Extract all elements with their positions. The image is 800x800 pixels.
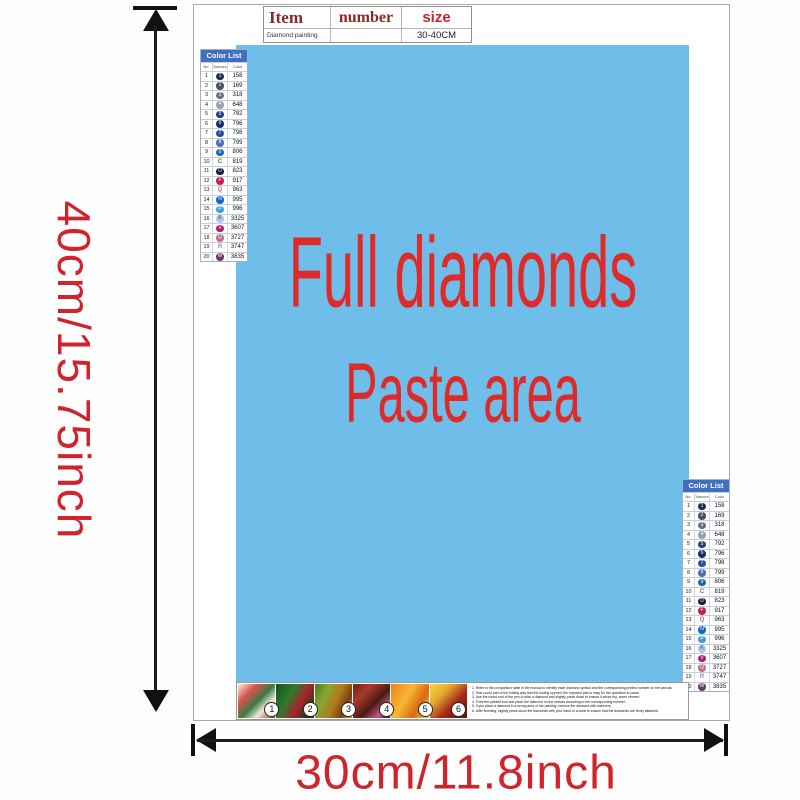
- diamond-swatch-icon: N: [698, 626, 706, 634]
- row-number: 1: [683, 502, 694, 511]
- row-number: 14: [201, 196, 212, 205]
- dmc-color-code: 796: [709, 550, 729, 559]
- diamond-symbol-icon: C: [218, 159, 222, 165]
- dmc-color-code: 3835: [709, 683, 729, 692]
- step-image-1: 1: [238, 684, 275, 718]
- dmc-color-code: 158: [227, 72, 247, 81]
- horizontal-dimension-line: [197, 739, 723, 742]
- row-number: 10: [683, 588, 694, 597]
- dmc-color-code: 648: [227, 101, 247, 110]
- horizontal-dimension-right-cap: [724, 724, 728, 756]
- horizontal-dimension-left-cap: [191, 724, 195, 756]
- width-dimension-label: 30cm/11.8inch: [295, 746, 617, 800]
- color-list-right: Color List No. Diamond Color 11158221693…: [682, 479, 730, 692]
- paste-area: Full diamonds Paste area: [236, 45, 689, 682]
- diamond-swatch-icon: V: [698, 655, 706, 663]
- dmc-color-code: 995: [227, 196, 247, 205]
- row-number: 13: [201, 186, 212, 195]
- color-list-row: 20W3835: [683, 682, 729, 692]
- row-number: 19: [683, 673, 694, 682]
- diamond-swatch-icon: 1: [698, 503, 706, 511]
- item-column-header: Item: [264, 7, 330, 28]
- row-number: 17: [201, 224, 212, 233]
- row-number: 5: [201, 110, 212, 119]
- diamond-swatch-icon: 2: [698, 512, 706, 520]
- step-image-2: 2: [276, 684, 313, 718]
- instruction-strip: 123456 1. Refer to the comparison table …: [236, 682, 689, 720]
- no-column-header: No.: [683, 493, 694, 501]
- color-list-row: 17V3607: [683, 653, 729, 663]
- color-list-row: 11158: [201, 71, 247, 81]
- row-number: 3: [683, 521, 694, 530]
- dmc-color-code: 158: [709, 502, 729, 511]
- step-number-badge: 6: [451, 702, 466, 717]
- dmc-color-code: 648: [709, 531, 729, 540]
- color-list-row: 44648: [683, 530, 729, 540]
- row-number: 7: [683, 559, 694, 568]
- color-list-row: 18Q3727: [201, 233, 247, 243]
- row-number: 8: [201, 139, 212, 148]
- color-list-row: 66796: [683, 549, 729, 559]
- dmc-color-code: 3747: [227, 243, 247, 252]
- row-number: 7: [201, 129, 212, 138]
- row-number: 11: [201, 167, 212, 176]
- diamond-swatch-icon: D: [216, 168, 224, 176]
- dmc-color-code: 963: [227, 186, 247, 195]
- color-list-title: Color List: [201, 50, 247, 62]
- row-number: 2: [683, 512, 694, 521]
- dmc-color-code: 823: [709, 597, 729, 606]
- diamond-swatch-icon: 4: [698, 531, 706, 539]
- diamond-swatch-icon: Q: [216, 234, 224, 242]
- item-size-cell: 30-40CM: [401, 29, 471, 42]
- diamond-swatch-icon: K: [698, 645, 706, 653]
- diamond-swatch-icon: 2: [216, 82, 224, 90]
- dmc-color-code: 3727: [227, 234, 247, 243]
- dmc-color-code: 3727: [709, 664, 729, 673]
- row-number: 16: [683, 645, 694, 654]
- step-thumbnails: 123456: [237, 683, 468, 719]
- diamond-swatch-icon: 6: [216, 120, 224, 128]
- color-list-row: 14N995: [683, 625, 729, 635]
- row-number: 15: [201, 205, 212, 214]
- instruction-line: 1. Refer to the comparison table in the …: [472, 686, 685, 691]
- color-list-row: 77798: [683, 558, 729, 568]
- row-number: 9: [201, 148, 212, 157]
- color-list-row: 33318: [683, 520, 729, 530]
- color-list-row: 16K3325: [683, 644, 729, 654]
- dmc-color-code: 318: [709, 521, 729, 530]
- color-list-row: 22169: [201, 81, 247, 91]
- dmc-color-code: 963: [709, 616, 729, 625]
- color-list-row: 11D823: [683, 596, 729, 606]
- diamond-symbol-icon: C: [700, 589, 704, 595]
- row-number: 18: [201, 234, 212, 243]
- item-name-cell: Diamond painting: [264, 29, 330, 42]
- row-number: 13: [683, 616, 694, 625]
- dmc-color-code: 3835: [227, 253, 247, 262]
- diamond-swatch-icon: 3: [698, 522, 706, 530]
- diamond-swatch-icon: 9: [216, 149, 224, 157]
- row-number: 5: [683, 540, 694, 549]
- diamond-swatch-icon: F: [698, 607, 706, 615]
- dmc-color-code: 917: [227, 177, 247, 186]
- color-list-row: 13Q963: [201, 185, 247, 195]
- color-list-row: 99806: [683, 577, 729, 587]
- dmc-color-code: 799: [709, 569, 729, 578]
- dmc-color-code: 318: [227, 91, 247, 100]
- color-list-row: 22169: [683, 511, 729, 521]
- dmc-color-code: 996: [709, 635, 729, 644]
- dmc-color-code: 3325: [227, 215, 247, 224]
- diamond-swatch-icon: 7: [698, 560, 706, 568]
- row-number: 9: [683, 578, 694, 587]
- color-list-left: Color List No. Diamond Color 11158221693…: [200, 49, 248, 262]
- step-number-badge: 5: [418, 702, 433, 717]
- diamond-swatch-icon: 5: [698, 541, 706, 549]
- diamond-swatch-icon: F: [216, 177, 224, 185]
- row-number: 6: [683, 550, 694, 559]
- color-list-row: 66796: [201, 119, 247, 129]
- row-number: 18: [683, 664, 694, 673]
- step-image-5: 5: [391, 684, 428, 718]
- canvas-poster: Item number size Diamond painting 30-40C…: [193, 4, 730, 721]
- diamond-swatch-icon: K: [216, 215, 224, 223]
- row-number: 4: [683, 531, 694, 540]
- row-number: 3: [201, 91, 212, 100]
- color-list-row: 18Q3727: [683, 663, 729, 673]
- diamond-swatch-icon: P: [698, 636, 706, 644]
- dmc-color-code: 917: [709, 607, 729, 616]
- item-table-header-row: Item number size: [264, 7, 471, 29]
- color-list-column-headers: No. Diamond Color: [201, 62, 247, 71]
- diamond-swatch-icon: 8: [216, 139, 224, 147]
- diamond-swatch-icon: D: [698, 598, 706, 606]
- step-image-6: 6: [430, 684, 467, 718]
- diamond-swatch-icon: 6: [698, 550, 706, 558]
- dmc-color-code: 796: [227, 120, 247, 129]
- color-list-row: 11D823: [201, 166, 247, 176]
- color-list-row: 88799: [683, 568, 729, 578]
- dmc-color-code: 798: [227, 129, 247, 138]
- color-list-row: 19R3747: [683, 672, 729, 682]
- size-column-header: size: [401, 7, 471, 28]
- color-list-row: 12F917: [201, 176, 247, 186]
- diamond-swatch-icon: 1: [216, 73, 224, 81]
- color-list-row: 13Q963: [683, 615, 729, 625]
- color-list-row: 55792: [683, 539, 729, 549]
- instruction-line: 6. After finishing, slightly press down …: [472, 709, 685, 714]
- diamond-symbol-icon: Q: [700, 617, 705, 623]
- arrow-right-icon: [704, 728, 724, 752]
- row-number: 2: [201, 82, 212, 91]
- diamond-swatch-icon: 3: [216, 92, 224, 100]
- diamond-swatch-icon: N: [216, 196, 224, 204]
- dmc-color-code: 3607: [709, 654, 729, 663]
- row-number: 12: [201, 177, 212, 186]
- arrow-down-icon: [143, 690, 169, 712]
- item-number-cell: [330, 29, 401, 42]
- row-number: 11: [683, 597, 694, 606]
- no-column-header: No.: [201, 63, 212, 71]
- number-column-header: number: [330, 7, 401, 28]
- dmc-color-code: 3325: [709, 645, 729, 654]
- dmc-color-code: 823: [227, 167, 247, 176]
- step-number-badge: 2: [303, 702, 318, 717]
- dmc-color-code: 798: [709, 559, 729, 568]
- diamond-symbol-icon: Q: [218, 187, 223, 193]
- diamond-swatch-icon: 4: [216, 101, 224, 109]
- item-table-data-row: Diamond painting 30-40CM: [264, 29, 471, 42]
- color-list-row: 15P996: [201, 204, 247, 214]
- product-infographic: 40cm/15.75inch Item number size Diamond …: [0, 0, 800, 800]
- color-list-row: 20W3835: [201, 252, 247, 262]
- dmc-color-code: 806: [709, 578, 729, 587]
- color-list-rows: 1115822169333184464855792667967779888799…: [683, 501, 729, 691]
- color-list-title: Color List: [683, 480, 729, 492]
- color-list-row: 88799: [201, 138, 247, 148]
- paste-area-subtitle: Paste area: [345, 345, 581, 442]
- dmc-color-code: 3607: [227, 224, 247, 233]
- diamond-column-header: Diamond: [694, 493, 709, 501]
- color-list-row: 16K3325: [201, 214, 247, 224]
- row-number: 4: [201, 101, 212, 110]
- vertical-dimension-line: [154, 26, 157, 694]
- color-list-row: 14N995: [201, 195, 247, 205]
- color-list-row: 15P996: [683, 634, 729, 644]
- color-column-header: Color: [227, 63, 247, 71]
- dmc-color-code: 169: [227, 82, 247, 91]
- dmc-color-code: 799: [227, 139, 247, 148]
- dmc-color-code: 792: [709, 540, 729, 549]
- row-number: 6: [201, 120, 212, 129]
- color-list-row: 55792: [201, 109, 247, 119]
- color-list-row: 77798: [201, 128, 247, 138]
- color-list-row: 19R3747: [201, 242, 247, 252]
- row-number: 1: [201, 72, 212, 81]
- item-info-table: Item number size Diamond painting 30-40C…: [263, 6, 472, 43]
- paste-area-title: Full diamonds: [288, 216, 637, 331]
- diamond-swatch-icon: W: [216, 253, 224, 261]
- dmc-color-code: 819: [227, 158, 247, 167]
- diamond-swatch-icon: 9: [698, 579, 706, 587]
- row-number: 20: [201, 253, 212, 262]
- color-list-row: 11158: [683, 501, 729, 511]
- diamond-swatch-icon: W: [698, 683, 706, 691]
- dmc-color-code: 995: [709, 626, 729, 635]
- color-list-row: 17V3607: [201, 223, 247, 233]
- color-list-row: 99806: [201, 147, 247, 157]
- color-column-header: Color: [709, 493, 729, 501]
- dmc-color-code: 819: [709, 588, 729, 597]
- color-list-row: 10C819: [201, 157, 247, 167]
- row-number: 12: [683, 607, 694, 616]
- row-number: 10: [201, 158, 212, 167]
- color-list-row: 12F917: [683, 606, 729, 616]
- dmc-color-code: 806: [227, 148, 247, 157]
- dmc-color-code: 169: [709, 512, 729, 521]
- row-number: 15: [683, 635, 694, 644]
- step-image-4: 4: [353, 684, 390, 718]
- height-dimension-label: 40cm/15.75inch: [47, 201, 101, 540]
- row-number: 8: [683, 569, 694, 578]
- diamond-swatch-icon: V: [216, 225, 224, 233]
- diamond-symbol-icon: R: [700, 674, 704, 680]
- row-number: 16: [201, 215, 212, 224]
- diamond-swatch-icon: 7: [216, 130, 224, 138]
- diamond-symbol-icon: R: [218, 244, 222, 250]
- dmc-color-code: 792: [227, 110, 247, 119]
- dmc-color-code: 996: [227, 205, 247, 214]
- color-list-row: 10C819: [683, 587, 729, 597]
- color-list-rows: 1115822169333184464855792667967779888799…: [201, 71, 247, 261]
- diamond-swatch-icon: 8: [698, 569, 706, 577]
- step-image-3: 3: [315, 684, 352, 718]
- row-number: 17: [683, 654, 694, 663]
- row-number: 19: [201, 243, 212, 252]
- diamond-swatch-icon: 5: [216, 111, 224, 119]
- diamond-column-header: Diamond: [212, 63, 227, 71]
- diamond-swatch-icon: P: [216, 206, 224, 214]
- color-list-row: 44648: [201, 100, 247, 110]
- row-number: 14: [683, 626, 694, 635]
- diamond-swatch-icon: Q: [698, 664, 706, 672]
- color-list-column-headers: No. Diamond Color: [683, 492, 729, 501]
- instructions-text: 1. Refer to the comparison table in the …: [468, 683, 688, 719]
- dmc-color-code: 3747: [709, 673, 729, 682]
- step-number-badge: 3: [341, 702, 356, 717]
- color-list-row: 33318: [201, 90, 247, 100]
